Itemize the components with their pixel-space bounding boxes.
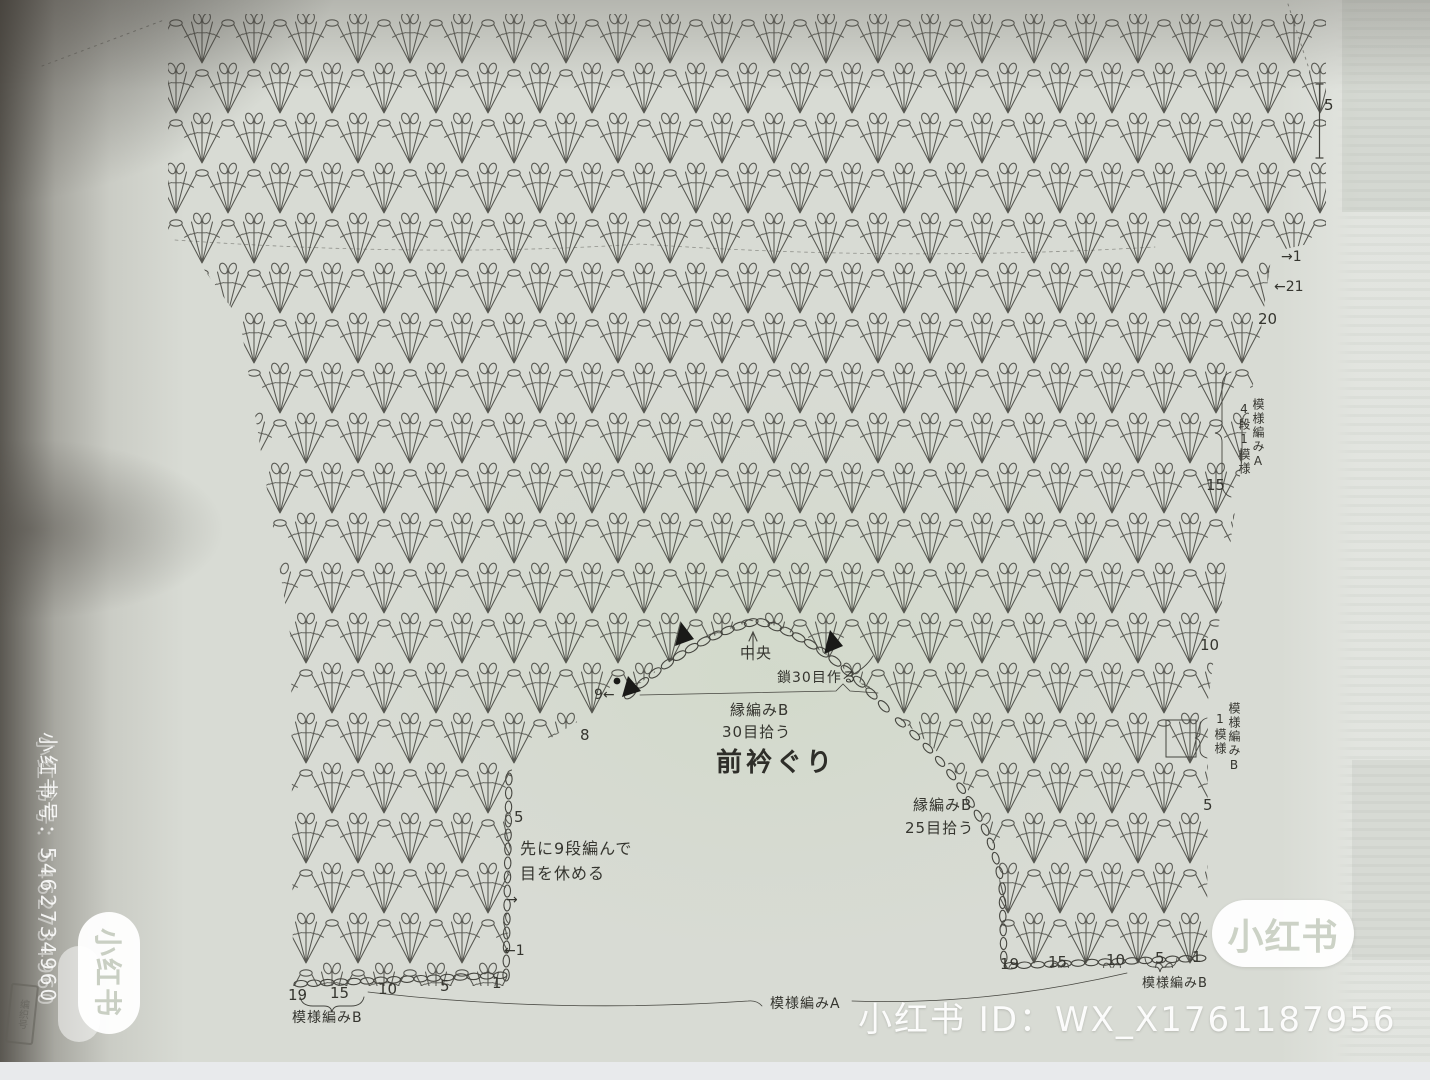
xiaohongshu-logo-text: 小红书 bbox=[89, 928, 129, 1018]
stitch-number-br-10: 10 bbox=[1106, 953, 1125, 968]
hold-stitches-note-line1: 先に9段編んで bbox=[520, 841, 632, 857]
stitch-number-br-19: 19 bbox=[1000, 957, 1019, 972]
row-number-right-5: 5 bbox=[1203, 798, 1213, 813]
pattern-b-bottom-left-label: 模様編みB bbox=[292, 1011, 363, 1025]
chain-cast-on-label: 鎖30目作る bbox=[777, 671, 857, 685]
neck-edge-pickup-right-line1: 縁編みB bbox=[913, 798, 972, 813]
pattern-b-bottom-right-label: 模様編みB bbox=[1142, 977, 1208, 990]
neck-edge-pickup-top-line1: 縁編みB bbox=[730, 703, 789, 718]
xiaohongshu-id-watermark: 小红书 ID：WX_X1761187956 bbox=[858, 992, 1397, 1041]
row-number-left-5: 5 bbox=[514, 810, 524, 825]
pattern-a-side-label-col2: 4段1模様 bbox=[1238, 402, 1250, 476]
xiaohongshu-badge-right: 小红书 bbox=[1212, 900, 1354, 967]
corner-stamp-text: 编织号 bbox=[13, 998, 31, 1029]
stitch-number-br-5: 5 bbox=[1155, 951, 1165, 966]
stitch-number-bl-15: 15 bbox=[330, 986, 349, 1001]
neck-edge-pickup-right-line2: 25目拾う bbox=[905, 821, 974, 836]
pattern-b-side-label-col2: 1模様 bbox=[1214, 712, 1226, 756]
pattern-a-bottom-label: 模様編みA bbox=[770, 997, 841, 1011]
neck-edge-pickup-top-line2: 30目拾う bbox=[722, 725, 791, 740]
row-number-left-8: 8 bbox=[580, 728, 590, 743]
pattern-a-side-label-col1: 模様編みA bbox=[1252, 398, 1264, 470]
row-number-right-15: 15 bbox=[1206, 478, 1225, 493]
stitch-number-bl-5: 5 bbox=[440, 979, 450, 994]
pattern-b-side-label-col1: 模様編みB bbox=[1228, 702, 1240, 774]
stitch-number-br-15: 15 bbox=[1048, 955, 1067, 970]
xiaohongshu-logo-text: 小红书 bbox=[1227, 908, 1338, 960]
row-number-left-1: ←1 bbox=[504, 944, 525, 958]
stitch-number-br-1: 1 bbox=[1192, 950, 1202, 965]
photo-bottom-edge bbox=[0, 1062, 1430, 1080]
hold-stitches-note-line2: 目を休める bbox=[520, 866, 605, 882]
row-number-right-21: ←21 bbox=[1274, 280, 1304, 294]
center-marker-label: 中央 bbox=[740, 646, 772, 661]
row-number-right-20: 20 bbox=[1258, 312, 1277, 327]
row-number-right-10: 10 bbox=[1200, 638, 1219, 653]
front-neckline-title: 前衿ぐり bbox=[716, 750, 836, 776]
stitch-number-bl-10: 10 bbox=[378, 982, 397, 997]
row-number-right-1: →1 bbox=[1281, 250, 1302, 264]
photo-of-crochet-chart: 中央 鎖30目作る 縁編みB 30目拾う 前衿ぐり 縁編みB 25目拾う 先に9… bbox=[0, 0, 1430, 1080]
row-arrow-left: → bbox=[506, 893, 518, 907]
stitch-number-bl-1: 1 bbox=[492, 976, 502, 991]
xiaohongshu-badge-left: 小红书 bbox=[78, 912, 140, 1034]
stitch-number-bl-19: 19 bbox=[288, 988, 307, 1003]
row-number-left-9: 9← bbox=[594, 688, 615, 702]
row-count-top-right: 5 bbox=[1324, 98, 1334, 113]
